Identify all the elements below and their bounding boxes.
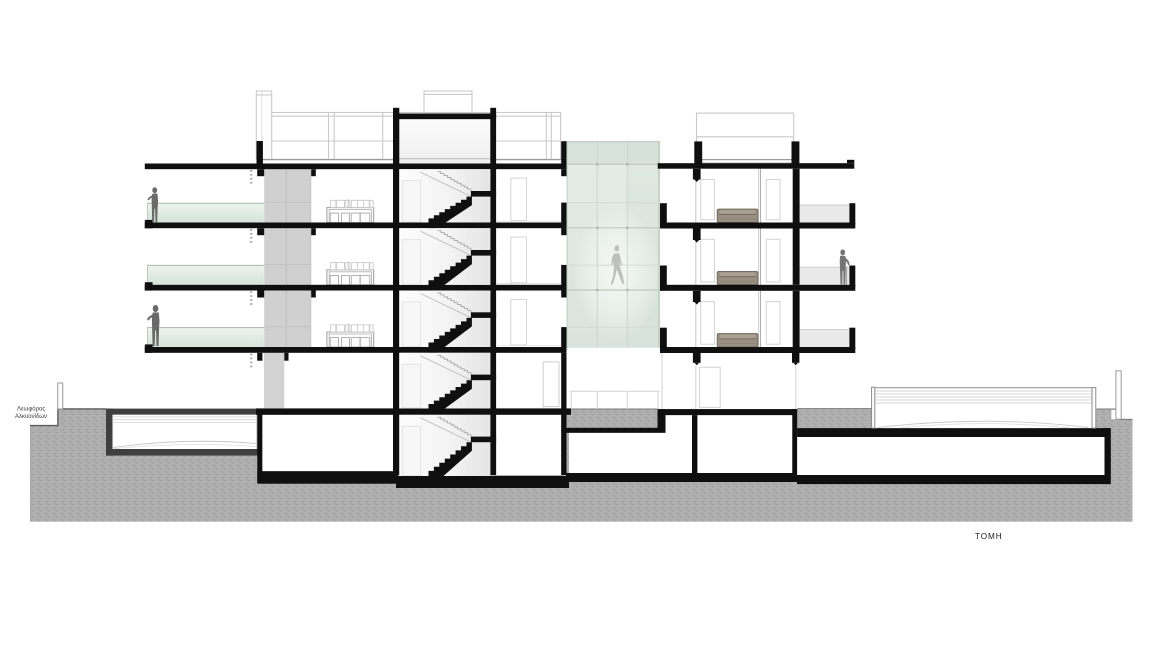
svg-text:ΤΟΜΗ: ΤΟΜΗ — [975, 532, 1003, 541]
svg-text:Αλκυονίδων: Αλκυονίδων — [15, 414, 47, 420]
svg-text:Λεωφόρος: Λεωφόρος — [17, 406, 45, 413]
